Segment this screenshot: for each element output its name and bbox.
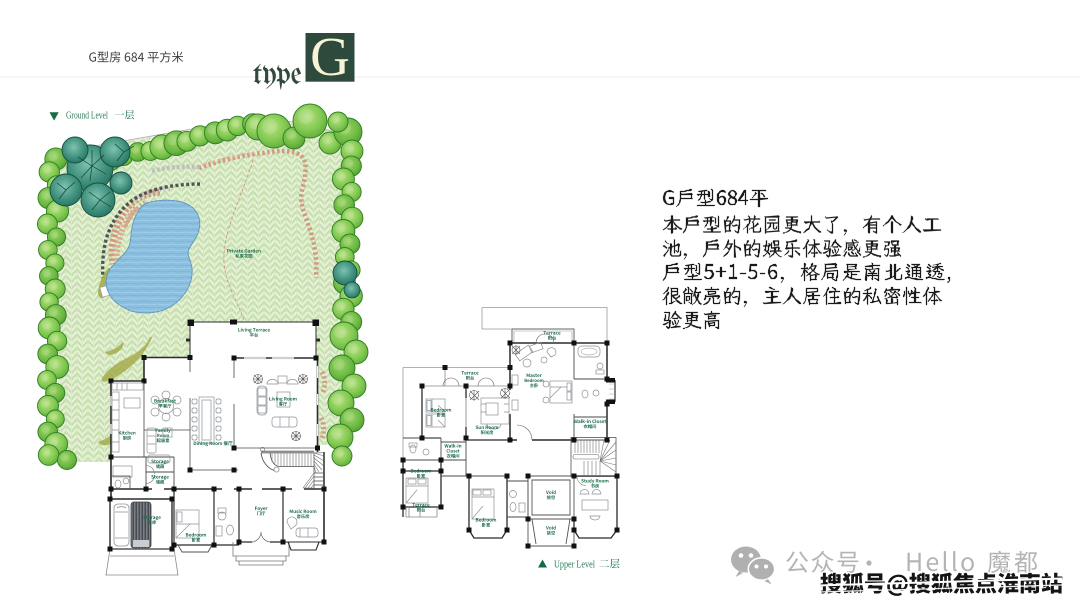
svg-text:G: G	[310, 26, 350, 87]
svg-text:Ground Level: Ground Level	[66, 111, 108, 122]
svg-text:Upper Level: Upper Level	[554, 560, 595, 571]
